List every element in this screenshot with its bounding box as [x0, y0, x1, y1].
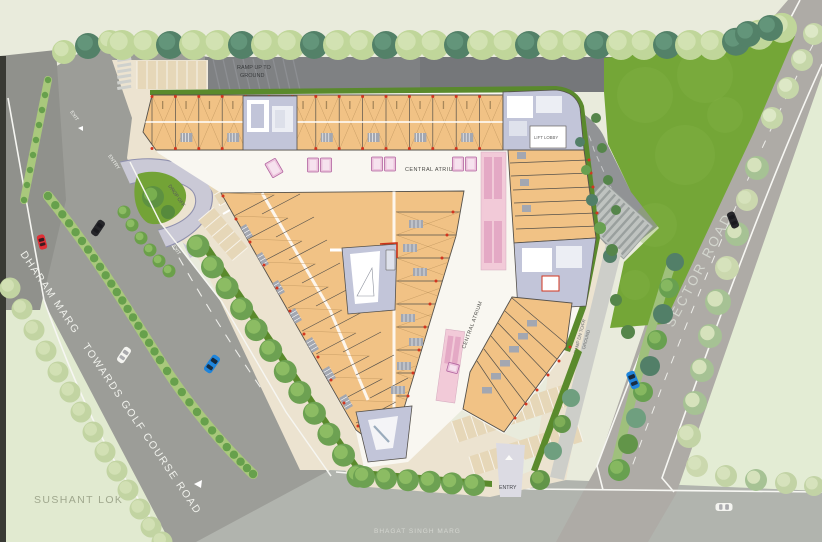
svg-text:GROUND: GROUND: [240, 73, 264, 79]
svg-text:RAMP UP TO: RAMP UP TO: [237, 65, 272, 71]
svg-text:SUSHANT LOK: SUSHANT LOK: [34, 494, 123, 506]
svg-text:ENTRY: ENTRY: [499, 485, 517, 491]
svg-text:LIFT LOBBY: LIFT LOBBY: [534, 135, 558, 140]
svg-text:BHAGAT SINGH MARG: BHAGAT SINGH MARG: [374, 528, 461, 535]
svg-text:CENTRAL ATRIUM: CENTRAL ATRIUM: [405, 167, 458, 173]
